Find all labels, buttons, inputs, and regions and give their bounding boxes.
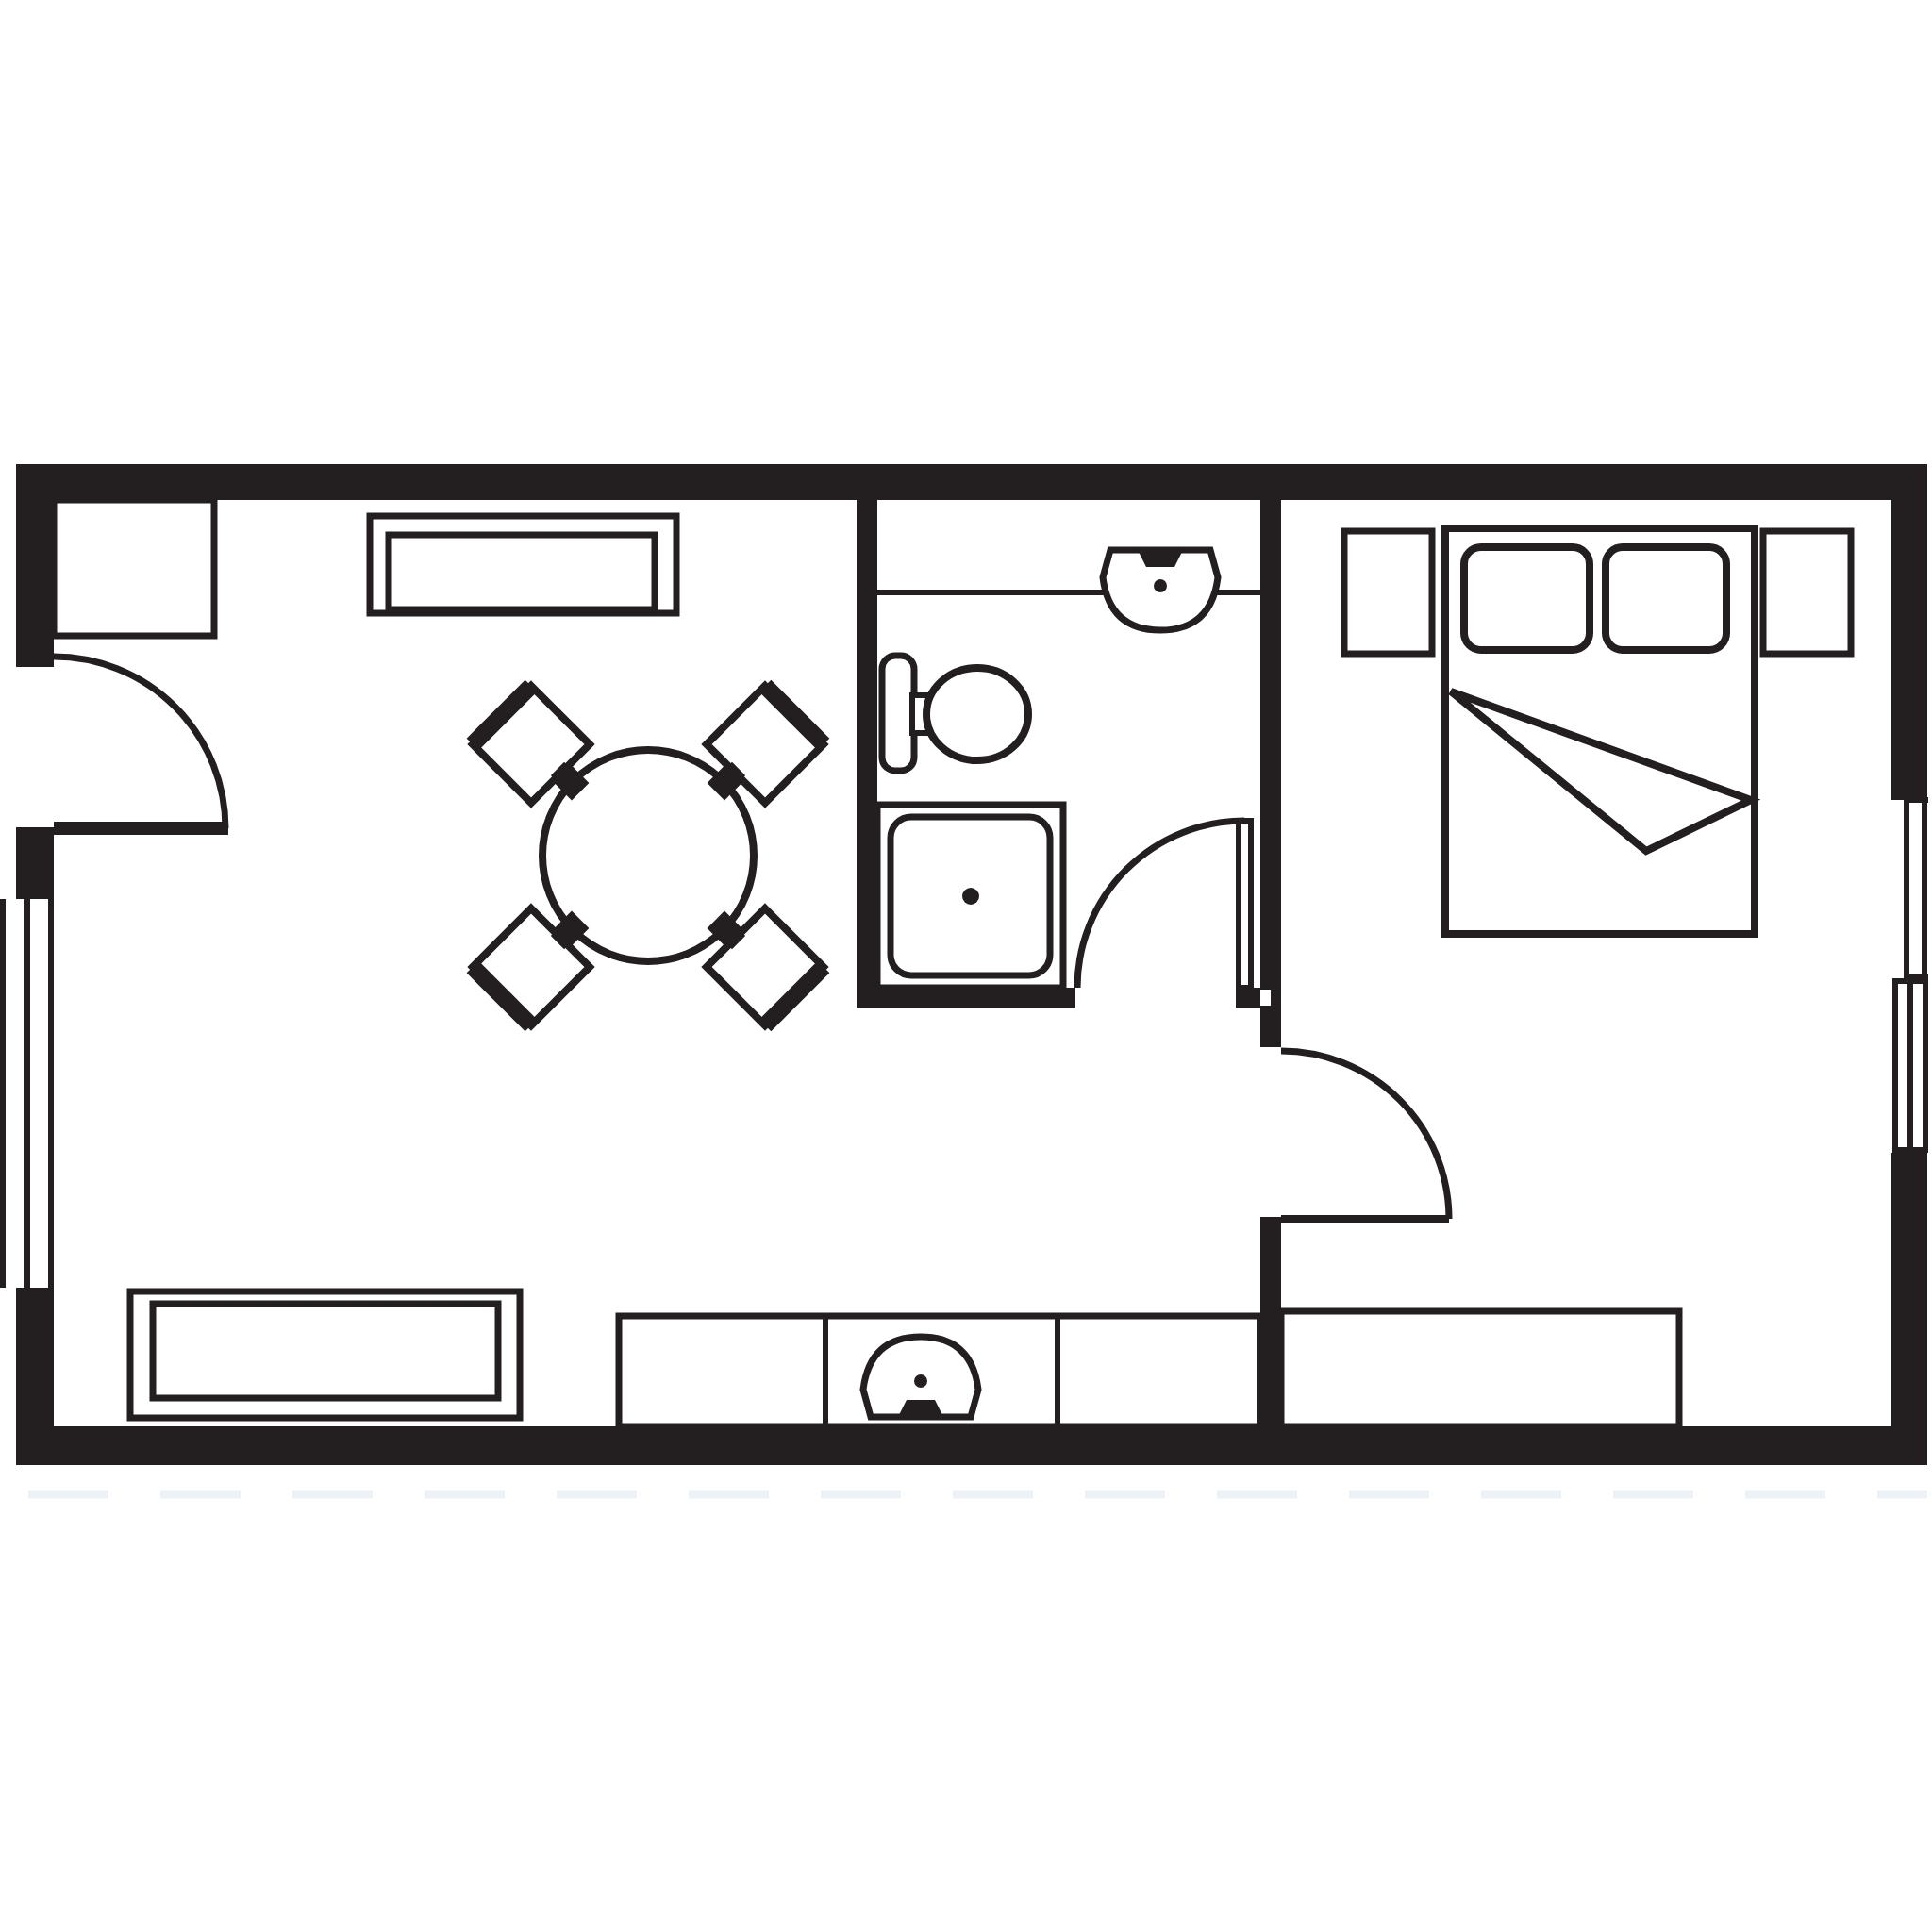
- pillow-left: [1464, 547, 1590, 650]
- bathroom-door-arc: [1077, 821, 1244, 988]
- bedroom-counter: [1281, 1311, 1679, 1426]
- right-upper-window-bar-left: [1904, 797, 1909, 979]
- floor-plan-page: [0, 0, 1932, 1932]
- pillow-right: [1606, 547, 1726, 650]
- left-window-bar-outer: [0, 899, 6, 1288]
- nightstand-right: [1763, 531, 1851, 654]
- wall-left-mid: [16, 827, 54, 899]
- right-lower-window-bar-left: [1892, 978, 1898, 1153]
- right-lower-window-bar-right: [1923, 978, 1928, 1153]
- wall-right-lower: [1891, 1153, 1927, 1465]
- floor-plan-drawing: [0, 0, 1932, 1932]
- wall-bedroom-jamb-notch: [1260, 990, 1271, 1006]
- floor-plan-shapes: [0, 464, 1928, 1494]
- wall-left-upper: [16, 464, 54, 667]
- right-upper-window-bar-right: [1922, 797, 1927, 979]
- kitchen-counter-divider-1: [823, 1316, 828, 1426]
- bedroom-door-arc: [1281, 1051, 1449, 1219]
- toilet-bowl: [926, 668, 1028, 760]
- wall-bedroom-upper: [1260, 500, 1281, 1047]
- bathroom-sink-drain-dot: [1154, 579, 1167, 592]
- right-lower-window-bar-mid: [1907, 978, 1913, 1153]
- bathroom-door-leaf: [1239, 821, 1251, 988]
- entry-door-leaf: [54, 822, 228, 835]
- shower-drain-dot: [962, 888, 979, 905]
- left-window-bar-inner: [48, 899, 54, 1288]
- bedroom-door-leaf: [1281, 1215, 1449, 1223]
- wall-bottom: [16, 1426, 1927, 1465]
- wall-top: [16, 464, 1927, 500]
- sofa-top-outer: [370, 516, 676, 613]
- closet: [54, 500, 214, 636]
- kitchen-sink-drain-dot: [914, 1374, 927, 1388]
- toilet-tank: [882, 656, 914, 771]
- left-window-bar-mid: [24, 899, 30, 1288]
- right-lower-window-cap-bottom: [1892, 1147, 1928, 1153]
- kitchen-counter-divider-2: [1055, 1316, 1060, 1426]
- wall-left-lower: [16, 1288, 54, 1465]
- wall-bathroom-door-jamb: [1236, 988, 1260, 1008]
- nightstand-left: [1344, 531, 1432, 654]
- entry-door-swing-arc: [54, 657, 225, 828]
- wall-right-upper: [1891, 464, 1927, 800]
